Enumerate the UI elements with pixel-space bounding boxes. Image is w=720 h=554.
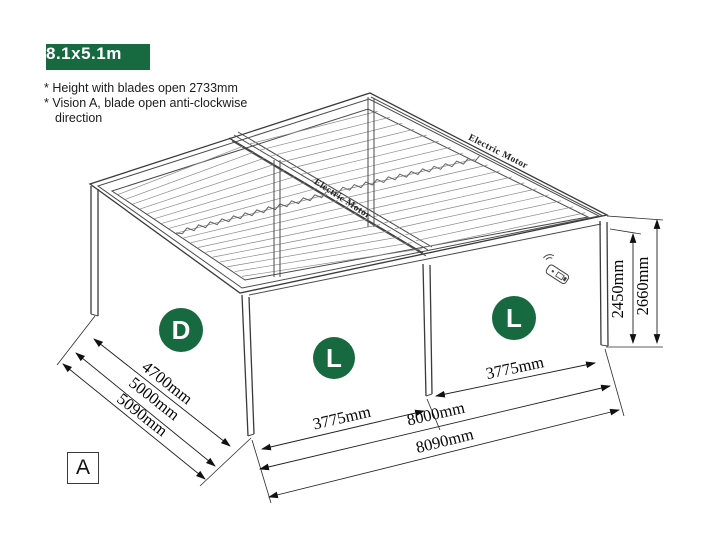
dim-width-frame: 8000mm [405, 398, 467, 430]
dim-height-overall: 2660mm [633, 257, 652, 316]
panel-marker-l-front-left: L [313, 337, 355, 379]
dim-height-post: 2450mm [608, 260, 627, 319]
dimension-labels: 4700mm 5000mm 5090mm 3775mm 3775mm 8000m… [113, 257, 652, 457]
electric-motor-label-right: Electric Motor [466, 133, 529, 172]
svg-text:L: L [506, 303, 522, 333]
svg-text:L: L [326, 343, 342, 373]
svg-text:D: D [172, 315, 191, 345]
louver-blades-left-bay [118, 146, 422, 276]
pergola-isometric-drawing: Electric Motor Electric Motor [0, 0, 720, 554]
dim-width-overall: 8090mm [414, 424, 476, 457]
roof-frame [90, 93, 607, 295]
panel-markers: D L L [159, 296, 536, 379]
remote-control-icon [538, 252, 575, 285]
view-label-box: A [67, 452, 99, 484]
panel-marker-d: D [159, 308, 203, 352]
panel-marker-l-front-right: L [492, 296, 536, 340]
dim-bay-left: 3775mm [311, 402, 373, 434]
pergola-spec-diagram-page: 8.1x5.1m * Height with blades open 2733m… [0, 0, 720, 554]
dim-bay-right: 3775mm [484, 352, 545, 383]
